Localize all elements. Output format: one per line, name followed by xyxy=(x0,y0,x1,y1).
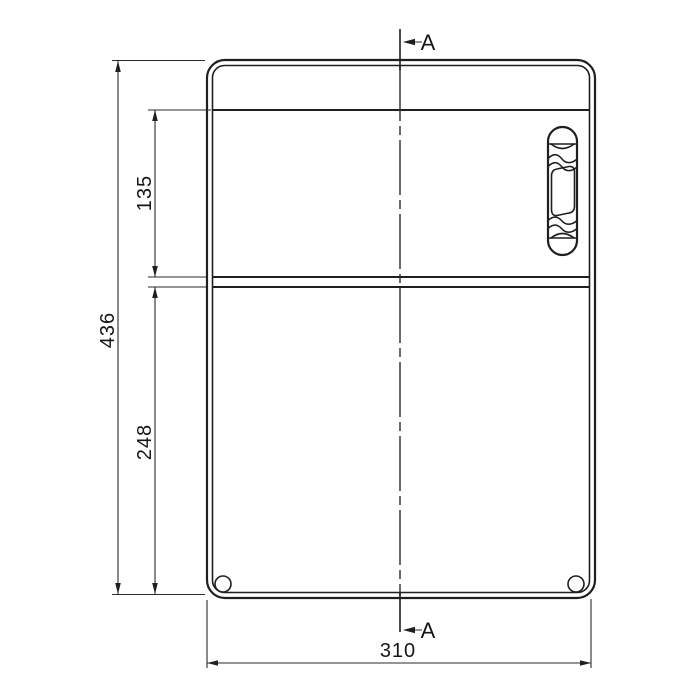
arrowhead-up-135 xyxy=(152,110,158,121)
dimension-lower-height: 248 xyxy=(134,287,206,594)
arrowhead-up-436 xyxy=(115,61,121,72)
section-label-bottom: A xyxy=(421,618,436,643)
handle-recess xyxy=(548,127,577,255)
dimension-overall-height: 436 xyxy=(97,61,205,595)
corner-hole-right xyxy=(568,576,584,592)
arrowhead-up-248 xyxy=(152,287,158,298)
part-outline-inner xyxy=(213,66,590,593)
handle-grip-wave-3 xyxy=(549,217,577,224)
handle-outline xyxy=(548,127,577,255)
part-outline-outer xyxy=(207,60,595,598)
drawing-canvas: A A 436 135 xyxy=(0,0,700,700)
dimension-overall-width: 310 xyxy=(207,599,591,668)
arrowhead-right-310 xyxy=(580,660,591,666)
dimension-upper-height: 135 xyxy=(134,110,211,277)
handle-grip-wave-1 xyxy=(549,155,577,163)
arrowhead-down-248 xyxy=(152,583,158,594)
arrowhead-left-310 xyxy=(207,660,218,666)
technical-drawing: A A 436 135 xyxy=(0,0,700,700)
section-cut-line: A A xyxy=(400,29,436,643)
arrowhead-down-135 xyxy=(152,266,158,277)
dimension-label-436: 436 xyxy=(97,312,119,348)
dimension-label-248: 248 xyxy=(134,424,156,460)
section-label-top: A xyxy=(421,30,436,55)
section-arrowhead-bottom xyxy=(403,627,415,633)
section-arrowhead-top xyxy=(403,39,415,45)
dimension-label-135: 135 xyxy=(134,175,156,211)
arrowhead-down-436 xyxy=(115,583,121,594)
handle-grip-wave-4 xyxy=(549,225,577,232)
corner-hole-left xyxy=(215,576,231,592)
part-view xyxy=(207,60,595,598)
dimension-label-310: 310 xyxy=(380,640,416,662)
handle-grip-body xyxy=(552,166,575,215)
